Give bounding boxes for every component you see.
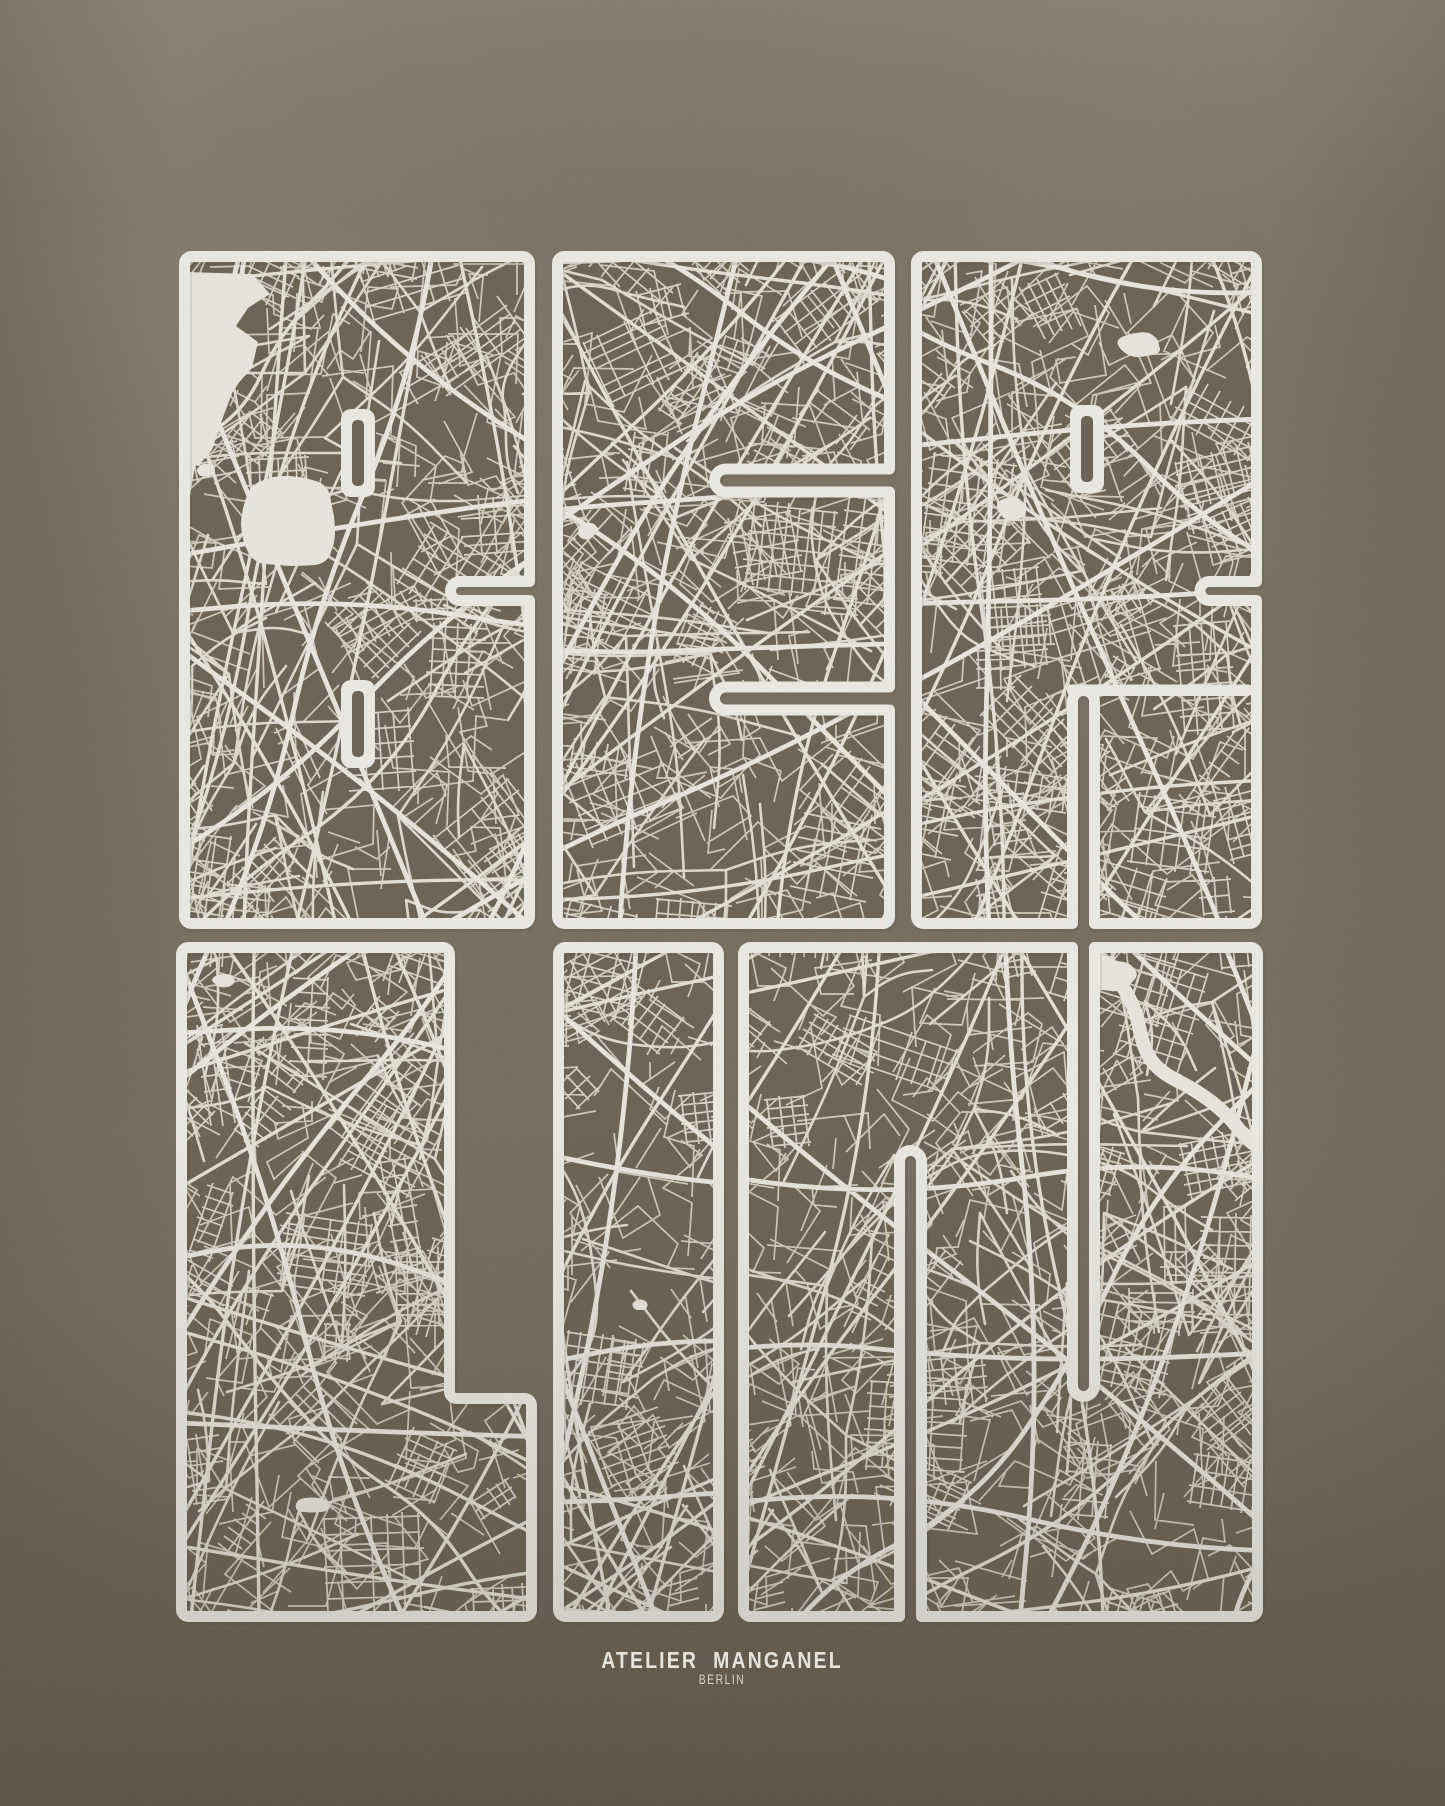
svg-text:BERLIN: BERLIN bbox=[699, 1672, 746, 1688]
svg-text:ATELIER MANGANEL: ATELIER MANGANEL bbox=[601, 1646, 843, 1673]
